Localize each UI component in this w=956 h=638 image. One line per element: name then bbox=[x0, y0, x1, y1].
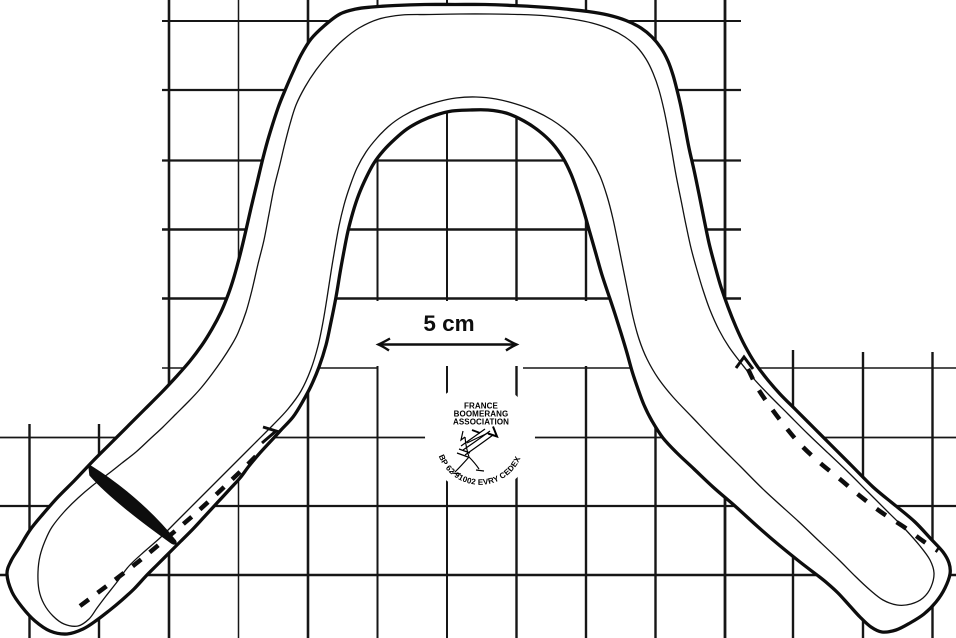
svg-text:5 cm: 5 cm bbox=[423, 311, 474, 336]
svg-text:ASSOCIATION: ASSOCIATION bbox=[453, 418, 509, 427]
